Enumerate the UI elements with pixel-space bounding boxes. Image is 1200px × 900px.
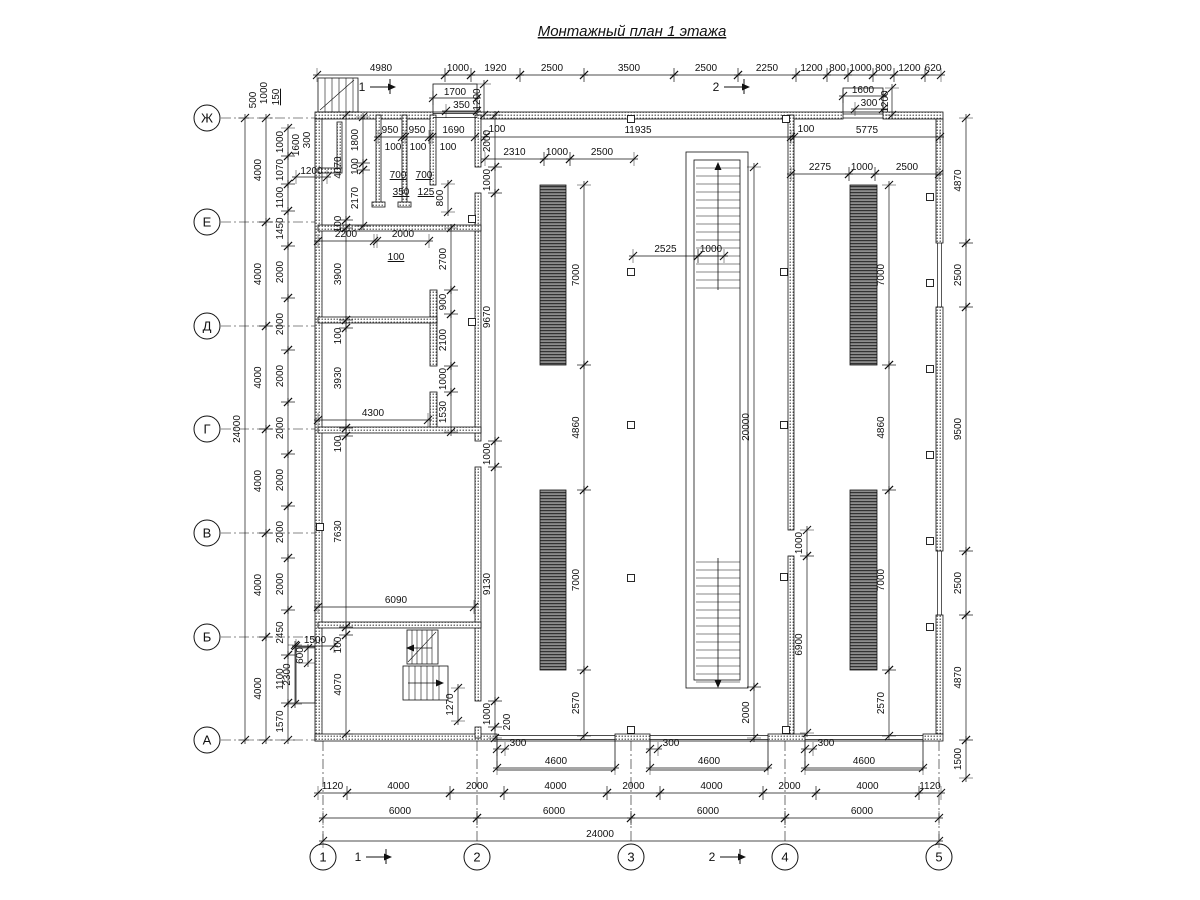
dimension-label: 4870 bbox=[953, 666, 964, 689]
dimension-label: 9130 bbox=[482, 572, 493, 595]
column-marker bbox=[469, 216, 476, 223]
dimension-label: 200 bbox=[502, 713, 513, 730]
dimension-label: 2000 bbox=[741, 701, 752, 724]
axis-col-2: 2 bbox=[464, 741, 490, 870]
dimension-label: 100 bbox=[385, 142, 402, 153]
dimension-chain: 18001002170 bbox=[350, 113, 370, 230]
dimension-label: 11935 bbox=[624, 125, 652, 136]
dimension-label: 4000 bbox=[700, 781, 723, 792]
dimension-label: 9670 bbox=[482, 305, 493, 328]
dimension-label: 6000 bbox=[851, 806, 874, 817]
column-marker bbox=[628, 269, 635, 276]
axis-row-Г: Г bbox=[194, 416, 315, 442]
dimension-label: 1000 bbox=[482, 702, 493, 725]
dimension-label: 2000 bbox=[275, 468, 286, 491]
dimension-label: 300 bbox=[510, 738, 527, 749]
dimension-label: 150 bbox=[271, 88, 282, 105]
column-marker bbox=[927, 194, 934, 201]
dimension-label: 125 bbox=[418, 187, 435, 198]
dimension-label: 6000 bbox=[389, 806, 412, 817]
column-marker bbox=[781, 422, 788, 429]
wall bbox=[936, 307, 943, 551]
dimension-label: 1000 bbox=[482, 442, 493, 465]
dimension-chain: 4300 bbox=[314, 408, 432, 427]
axis-marks-layer: ЖЕДГВБА12345 bbox=[194, 105, 952, 870]
axis-row-В: В bbox=[194, 520, 315, 546]
dimension-label: 500 bbox=[248, 91, 259, 108]
drawing-title: Монтажный план 1 этажа bbox=[538, 23, 727, 40]
dimension-label: 7000 bbox=[876, 263, 887, 286]
conveyor-strip bbox=[850, 185, 877, 365]
column-marker bbox=[927, 538, 934, 545]
dimension-chain: 200002000 bbox=[741, 163, 761, 742]
building-layer bbox=[296, 78, 943, 770]
section-mark-label: 1 bbox=[355, 850, 362, 864]
axis-row-Д: Д bbox=[194, 313, 315, 339]
column-marker bbox=[927, 624, 934, 631]
dimension-label: 4860 bbox=[571, 416, 582, 439]
dimension-label: 20000 bbox=[741, 413, 752, 441]
dimension-label: 1000 bbox=[438, 367, 449, 390]
wall bbox=[475, 115, 481, 167]
dimension-label: 100 bbox=[489, 124, 506, 135]
dimension-label: 1530 bbox=[438, 400, 449, 423]
axis-col-1: 1 bbox=[310, 741, 336, 870]
dimension-label: 7000 bbox=[571, 263, 582, 286]
dimension-label: 6090 bbox=[385, 595, 408, 606]
axis-col-label: 1 bbox=[319, 850, 326, 865]
arrow-head bbox=[738, 854, 746, 861]
wall bbox=[923, 734, 943, 741]
dimension-label: 2275 bbox=[809, 162, 832, 173]
dimension-chain: 7000486070002570 bbox=[876, 181, 896, 740]
dimension-label: 2500 bbox=[953, 263, 964, 286]
dimension-label: 3500 bbox=[618, 63, 641, 74]
axis-col-label: 5 bbox=[935, 850, 942, 865]
axis-col-3: 3 bbox=[618, 741, 644, 870]
dimension-label: 950 bbox=[382, 125, 399, 136]
dimension-label: 2170 bbox=[350, 186, 361, 209]
dimension-label: 2000 bbox=[392, 229, 415, 240]
dimension-label: 300 bbox=[818, 738, 835, 749]
wall bbox=[376, 115, 381, 205]
dimension-label: 100 bbox=[333, 327, 344, 344]
section-mark: 1 bbox=[359, 79, 396, 94]
wall bbox=[372, 202, 385, 207]
section-mark-label: 2 bbox=[709, 850, 716, 864]
dimension-label: 4000 bbox=[253, 469, 264, 492]
column-marker bbox=[781, 574, 788, 581]
dimension-chain: 1000107011001450200020002000200020002000… bbox=[275, 124, 295, 744]
dimension-label: 2250 bbox=[756, 63, 779, 74]
dimension-label: 1120 bbox=[322, 781, 344, 792]
dimension-label: 2000 bbox=[622, 781, 645, 792]
dimension-label: 2500 bbox=[695, 63, 718, 74]
dimension-label: 1600 bbox=[852, 85, 875, 96]
dimension-label: 5775 bbox=[856, 125, 879, 136]
axis-row-label: Д bbox=[203, 319, 212, 334]
dimension-label: 1000 bbox=[482, 168, 493, 191]
dimension-label: 4600 bbox=[853, 756, 876, 767]
column-marker bbox=[317, 524, 324, 531]
dimension-chain: 487025009500250048701500 bbox=[953, 114, 973, 782]
drawing-sheet: 4980100019202500350025002250120080010008… bbox=[0, 0, 1200, 900]
shaft-ladders bbox=[696, 162, 740, 688]
dimension-label: 2570 bbox=[571, 691, 582, 714]
dimension-label: 950 bbox=[409, 125, 426, 136]
dimensions-layer: 4980100019202500350025002250120080010008… bbox=[232, 63, 973, 848]
conveyor-strip bbox=[540, 185, 566, 365]
column-marker bbox=[628, 116, 635, 123]
arrow-head bbox=[436, 680, 444, 687]
axis-col-label: 3 bbox=[627, 850, 634, 865]
dimension-chain: 200010009670100091301000200 bbox=[482, 111, 513, 742]
axis-row-Е: Е bbox=[194, 209, 315, 235]
dimension-label: 100 bbox=[333, 215, 344, 232]
dimension-chain: 6090 bbox=[314, 595, 478, 614]
dimension-label: 1200 bbox=[300, 166, 323, 177]
dimension-chain: 22002000 bbox=[314, 229, 433, 248]
title-group: Монтажный план 1 этажа bbox=[538, 23, 727, 40]
axis-row-label: Е bbox=[203, 215, 212, 230]
column-marker bbox=[783, 727, 790, 734]
dimension-chain: 4980100019202500350025002250120080010008… bbox=[313, 63, 945, 82]
dimension-label: 2310 bbox=[503, 147, 526, 158]
dimension-label: 1000 bbox=[259, 81, 270, 104]
dimension-label: 2100 bbox=[438, 328, 449, 351]
dimension-label: 300 bbox=[302, 131, 313, 148]
axis-col-label: 4 bbox=[781, 850, 788, 865]
section-mark: 2 bbox=[713, 79, 750, 94]
axis-col-label: 2 bbox=[473, 850, 480, 865]
dimension-label: 2000 bbox=[778, 781, 801, 792]
wall bbox=[318, 317, 437, 323]
dimension-label: 7000 bbox=[571, 568, 582, 591]
dimension-label: 3900 bbox=[333, 262, 344, 285]
dimension-label: 1690 bbox=[442, 125, 465, 136]
stair-bottom-lower-flight bbox=[403, 666, 448, 700]
dimension-label: 100 bbox=[410, 142, 427, 153]
section-mark-label: 1 bbox=[359, 80, 366, 94]
dimension-label: 2300 bbox=[282, 663, 293, 686]
dimension-label: 4000 bbox=[253, 158, 264, 181]
dimension-label: 1500 bbox=[304, 635, 327, 646]
dimension-chain: 2700900210010001530 bbox=[438, 224, 458, 436]
dimension-label: 1600 bbox=[291, 133, 302, 156]
dimension-label: 6000 bbox=[543, 806, 566, 817]
dimension-label: 1120 bbox=[919, 781, 941, 792]
dimension-label: 1570 bbox=[275, 710, 286, 733]
dimension-label: 2500 bbox=[591, 147, 614, 158]
wall bbox=[475, 467, 481, 701]
dimension-label: 4000 bbox=[253, 677, 264, 700]
dimension-label: 2000 bbox=[275, 364, 286, 387]
dimension-label: 4000 bbox=[544, 781, 567, 792]
dimension-label: 1000 bbox=[849, 63, 872, 74]
dimension-label: 2570 bbox=[876, 691, 887, 714]
dimension-label: 3930 bbox=[333, 366, 344, 389]
dimension-chain: 112040002000400020004000200040001120 bbox=[314, 781, 945, 800]
section-mark: 2 bbox=[709, 849, 746, 864]
dimension-label: 1200 bbox=[898, 63, 921, 74]
dimension-label: 2500 bbox=[541, 63, 564, 74]
dimension-label: 1000 bbox=[275, 130, 286, 153]
dimension-label: 2700 bbox=[438, 247, 449, 270]
dimension-label: 24000 bbox=[586, 829, 614, 840]
dimension-label: 6900 bbox=[794, 633, 805, 656]
dimension-label: 800 bbox=[829, 63, 846, 74]
dimension-label: 4600 bbox=[698, 756, 721, 767]
dimension-label: 4000 bbox=[253, 262, 264, 285]
axis-row-label: Ж bbox=[201, 111, 213, 126]
dimension-label: 1200 bbox=[880, 90, 891, 113]
dimension-label: 2000 bbox=[275, 572, 286, 595]
axis-row-label: Г bbox=[203, 422, 210, 437]
dimension-chain: 600 bbox=[295, 644, 315, 667]
column-marker bbox=[628, 727, 635, 734]
conveyor-strip bbox=[850, 490, 877, 670]
conveyor-strip bbox=[540, 490, 566, 670]
dimension-label: 2000 bbox=[275, 416, 286, 439]
dimension-label: 1700 bbox=[444, 87, 467, 98]
column-marker bbox=[927, 366, 934, 373]
dimension-label: 1100 bbox=[275, 186, 286, 208]
wall bbox=[936, 615, 943, 734]
dimension-label: 1200 bbox=[472, 88, 483, 111]
dimension-label: 1000 bbox=[700, 244, 723, 255]
dimension-label: 2000 bbox=[275, 312, 286, 335]
dimension-label: 1000 bbox=[794, 531, 805, 554]
wall bbox=[398, 202, 411, 207]
dimension-label: 1200 bbox=[800, 63, 823, 74]
dimension-label: 2500 bbox=[953, 571, 964, 594]
section-mark-label: 2 bbox=[713, 80, 720, 94]
dimension-label: 9500 bbox=[953, 417, 964, 440]
dimension-label: 800 bbox=[435, 189, 446, 206]
dimension-label: 100 bbox=[333, 435, 344, 452]
column-marker bbox=[628, 422, 635, 429]
stair-top-left bbox=[318, 78, 358, 112]
dimension-label: 300 bbox=[861, 98, 878, 109]
dimension-label: 1000 bbox=[546, 147, 569, 158]
stair-outline bbox=[318, 78, 358, 112]
column-marker bbox=[927, 452, 934, 459]
outline-box bbox=[686, 152, 748, 688]
dimension-label: 1270 bbox=[445, 693, 456, 716]
axis-row-А: А bbox=[194, 727, 315, 753]
wall bbox=[768, 734, 805, 741]
column-marker bbox=[783, 116, 790, 123]
dimension-label: 1450 bbox=[275, 217, 286, 240]
dimension-label: 620 bbox=[925, 63, 942, 74]
dimension-label: 2000 bbox=[275, 520, 286, 543]
dimension-label: 2525 bbox=[654, 244, 677, 255]
dimension-chain: 119355775 bbox=[481, 125, 944, 144]
dimension-chain: 25251000 bbox=[629, 244, 728, 263]
arrow-head bbox=[742, 84, 750, 91]
dimension-label: 4860 bbox=[876, 416, 887, 439]
column-marker bbox=[781, 269, 788, 276]
wall bbox=[430, 290, 437, 366]
dimension-chain: 460046004600 bbox=[493, 756, 927, 775]
wall bbox=[475, 727, 481, 738]
dimension-label: 6000 bbox=[697, 806, 720, 817]
dimension-label: 350 bbox=[453, 100, 470, 111]
dimension-label: 1800 bbox=[350, 128, 361, 151]
dimension-label: 2450 bbox=[275, 621, 286, 644]
column-marker bbox=[628, 575, 635, 582]
stair-bottom-upper-flight bbox=[406, 630, 438, 664]
dimension-label: 1920 bbox=[484, 63, 507, 74]
arrow-head bbox=[715, 162, 722, 170]
wall bbox=[315, 112, 433, 119]
dimension-label: 4000 bbox=[253, 366, 264, 389]
dimension-chain: 800 bbox=[435, 180, 455, 216]
dimension-chain: 7000486070002570 bbox=[571, 181, 591, 740]
dimension-chain: 231010002500 bbox=[481, 147, 638, 166]
dimension-label: 900 bbox=[438, 293, 449, 310]
wall bbox=[615, 734, 650, 741]
axis-col-5: 5 bbox=[926, 741, 952, 870]
dimension-label: 1000 bbox=[447, 63, 470, 74]
column-marker bbox=[927, 280, 934, 287]
dimension-label: 100 bbox=[388, 252, 405, 263]
dimension-label: 1500 bbox=[953, 747, 964, 770]
dimension-label: 700 bbox=[390, 170, 407, 181]
floor-plan: 4980100019202500350025002250120080010008… bbox=[0, 0, 1200, 900]
dimension-label: 100 bbox=[350, 158, 361, 175]
dimension-label: 2000 bbox=[275, 260, 286, 283]
dimension-label: 4600 bbox=[545, 756, 568, 767]
dimension-label: 100 bbox=[440, 142, 457, 153]
dimension-label: 700 bbox=[416, 170, 433, 181]
dimension-label: 600 bbox=[295, 647, 306, 664]
dimension-label: 4300 bbox=[362, 408, 385, 419]
dimension-label: 4000 bbox=[856, 781, 879, 792]
arrow-head bbox=[388, 84, 396, 91]
axis-row-label: В bbox=[203, 526, 212, 541]
column-marker bbox=[469, 319, 476, 326]
dimension-label: 350 bbox=[393, 187, 410, 198]
dimension-label: 4000 bbox=[387, 781, 410, 792]
section-mark: 1 bbox=[355, 849, 392, 864]
dimension-chain: 227510002500 bbox=[787, 162, 943, 181]
dimension-label: 4980 bbox=[370, 63, 393, 74]
arrow-head bbox=[384, 854, 392, 861]
dimension-label: 4000 bbox=[253, 573, 264, 596]
dimension-label: 100 bbox=[798, 124, 815, 135]
dimension-label: 800 bbox=[875, 63, 892, 74]
dimension-chain: 10006900 bbox=[794, 526, 814, 737]
wall bbox=[430, 392, 437, 432]
dimension-label: 7630 bbox=[333, 520, 344, 543]
arrow-head bbox=[715, 680, 722, 688]
dimension-label: 300 bbox=[663, 738, 680, 749]
axis-col-4: 4 bbox=[772, 741, 798, 870]
dimension-label: 4070 bbox=[333, 673, 344, 696]
axis-row-label: А bbox=[203, 733, 212, 748]
axis-row-label: Б bbox=[203, 630, 212, 645]
dimension-label: 4070 bbox=[333, 156, 344, 179]
dimension-label: 4870 bbox=[953, 169, 964, 192]
dimension-label: 1070 bbox=[275, 158, 286, 181]
dimension-label: 7000 bbox=[876, 568, 887, 591]
dimension-label: 1000 bbox=[851, 162, 874, 173]
dimension-label: 2500 bbox=[896, 162, 919, 173]
